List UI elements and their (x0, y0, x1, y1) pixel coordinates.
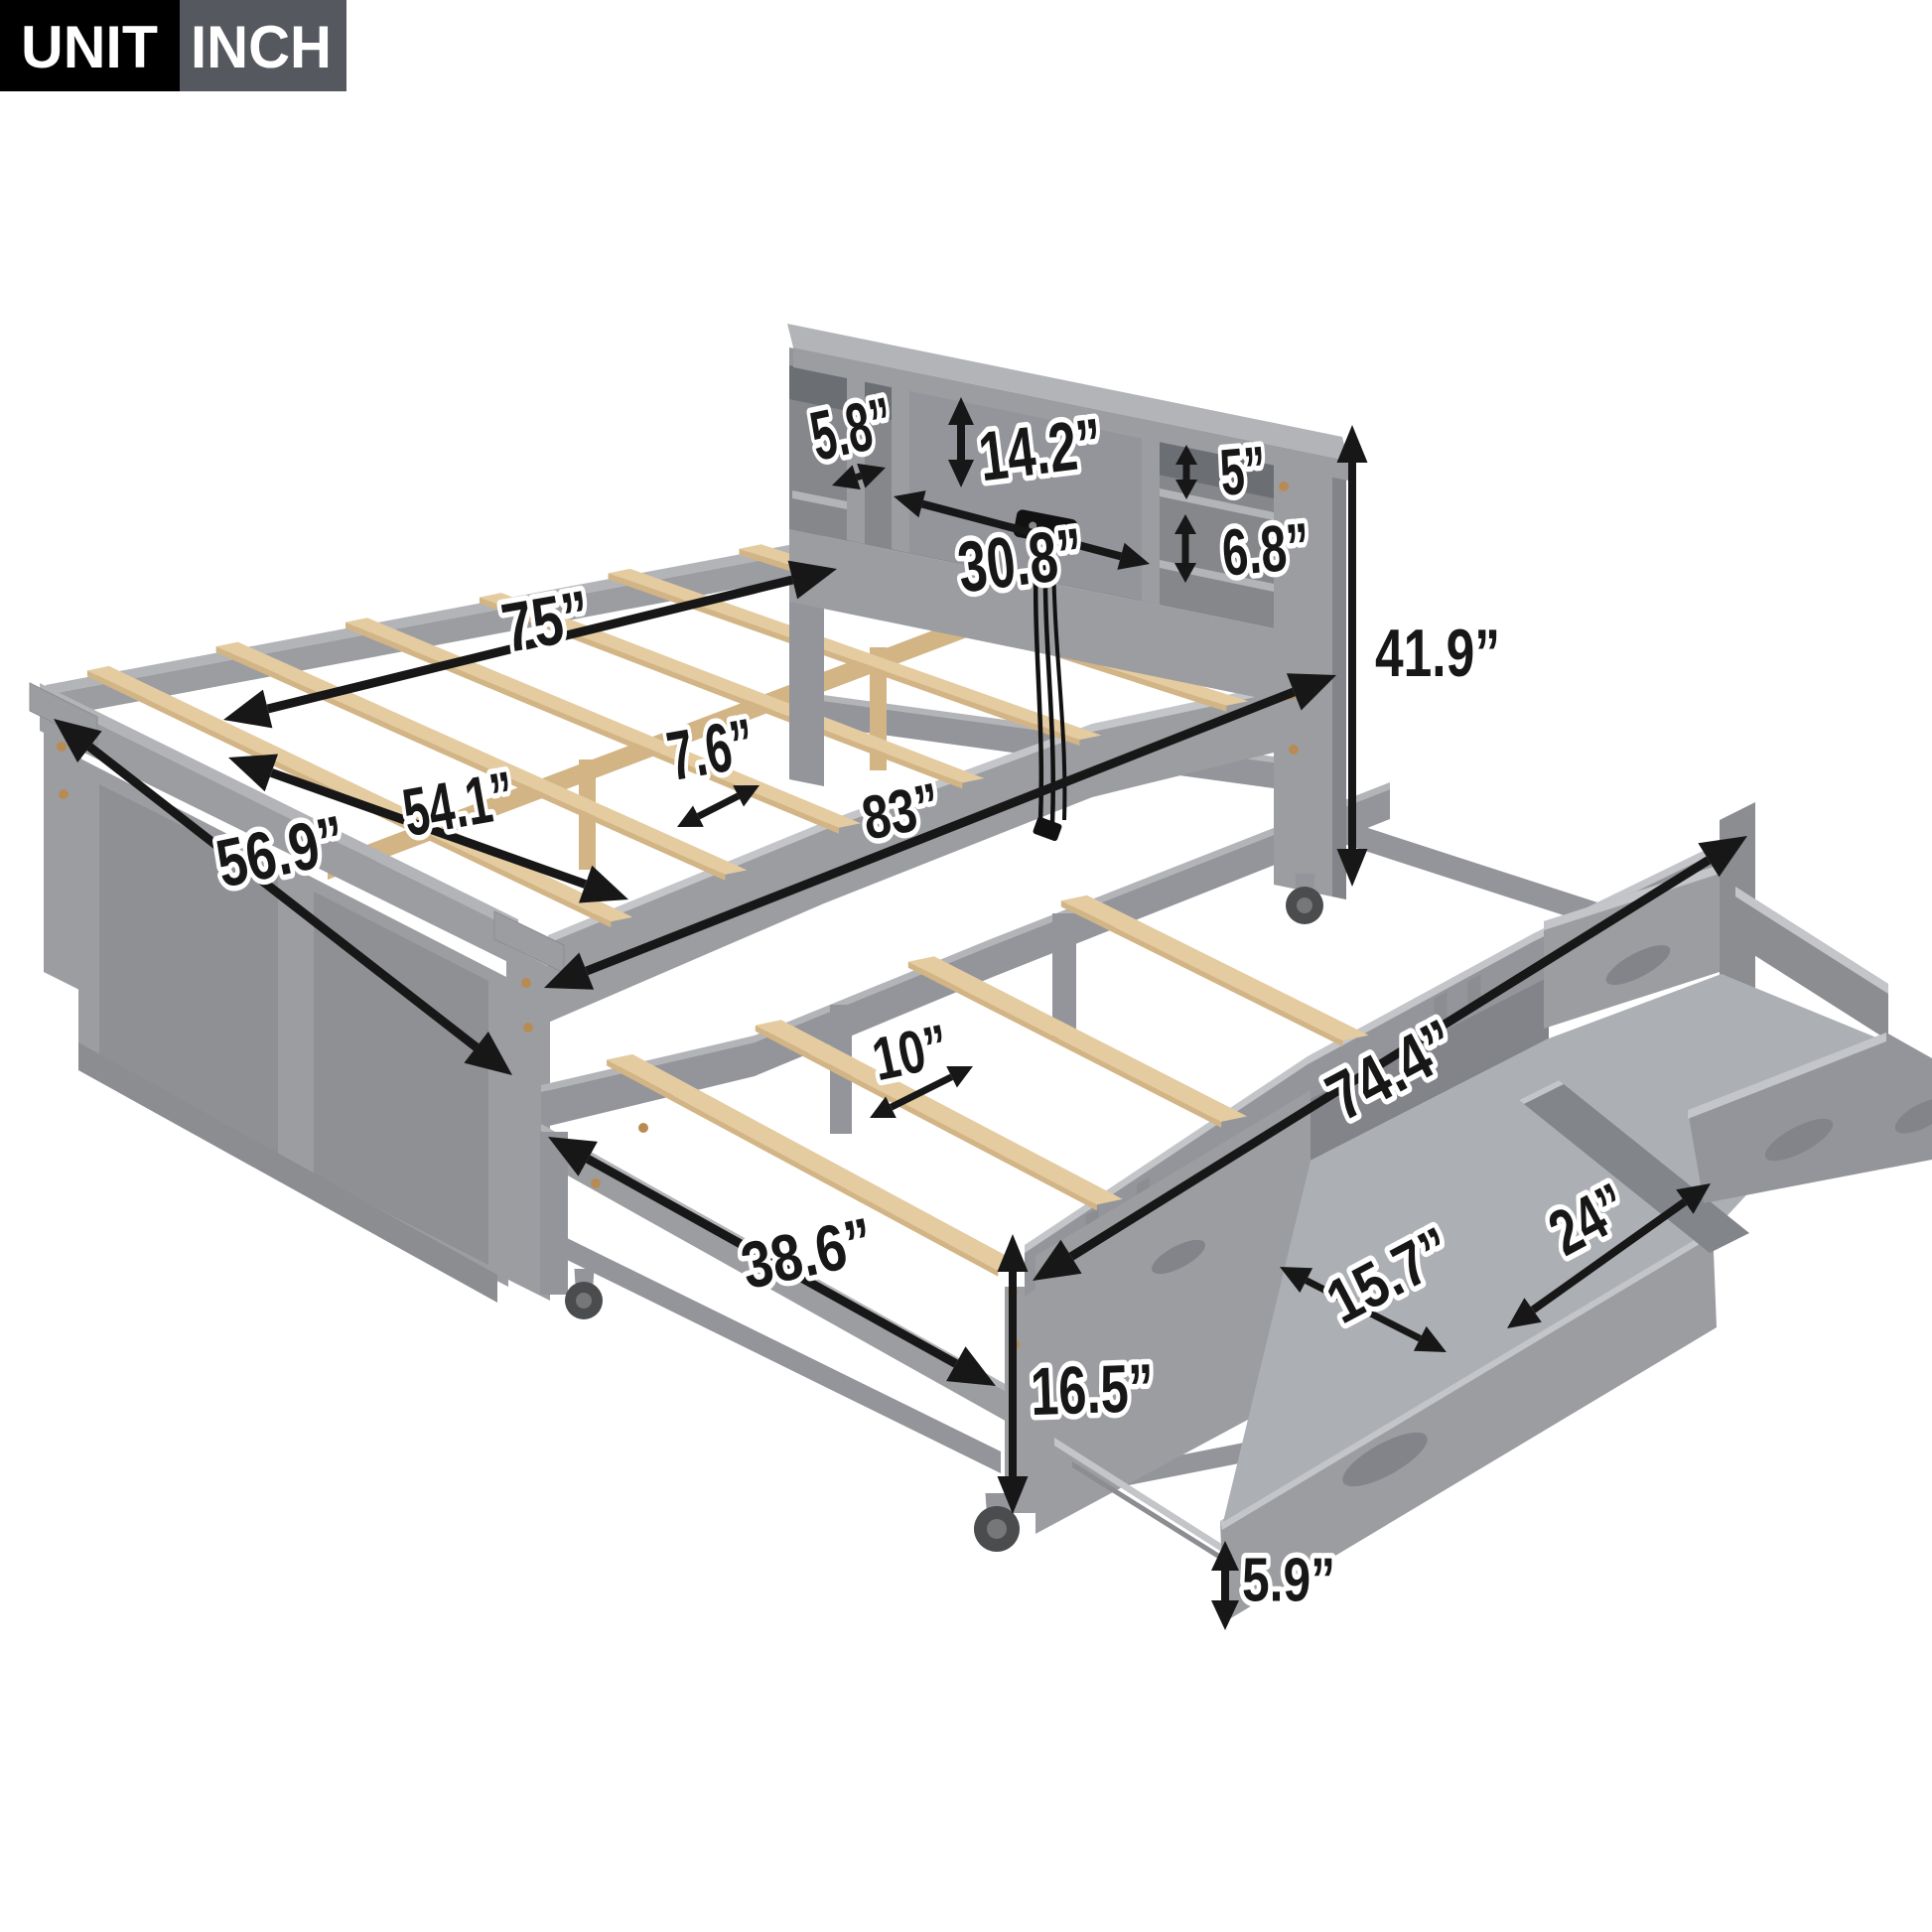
svg-text:5.9”: 5.9” (1242, 1547, 1335, 1615)
svg-text:16.5”: 16.5” (1030, 1350, 1156, 1430)
svg-text:6.8”: 6.8” (1219, 508, 1312, 589)
svg-text:INCH: INCH (191, 14, 332, 80)
svg-text:5”: 5” (1217, 432, 1269, 509)
svg-text:5.8”: 5.8” (804, 382, 899, 475)
svg-text:UNIT: UNIT (21, 14, 158, 80)
svg-text:30.8”: 30.8” (954, 514, 1088, 609)
svg-text:7.6”: 7.6” (661, 704, 759, 795)
svg-text:41.9”: 41.9” (1375, 616, 1500, 691)
svg-text:75”: 75” (496, 576, 596, 667)
svg-text:14.2”: 14.2” (975, 404, 1107, 496)
